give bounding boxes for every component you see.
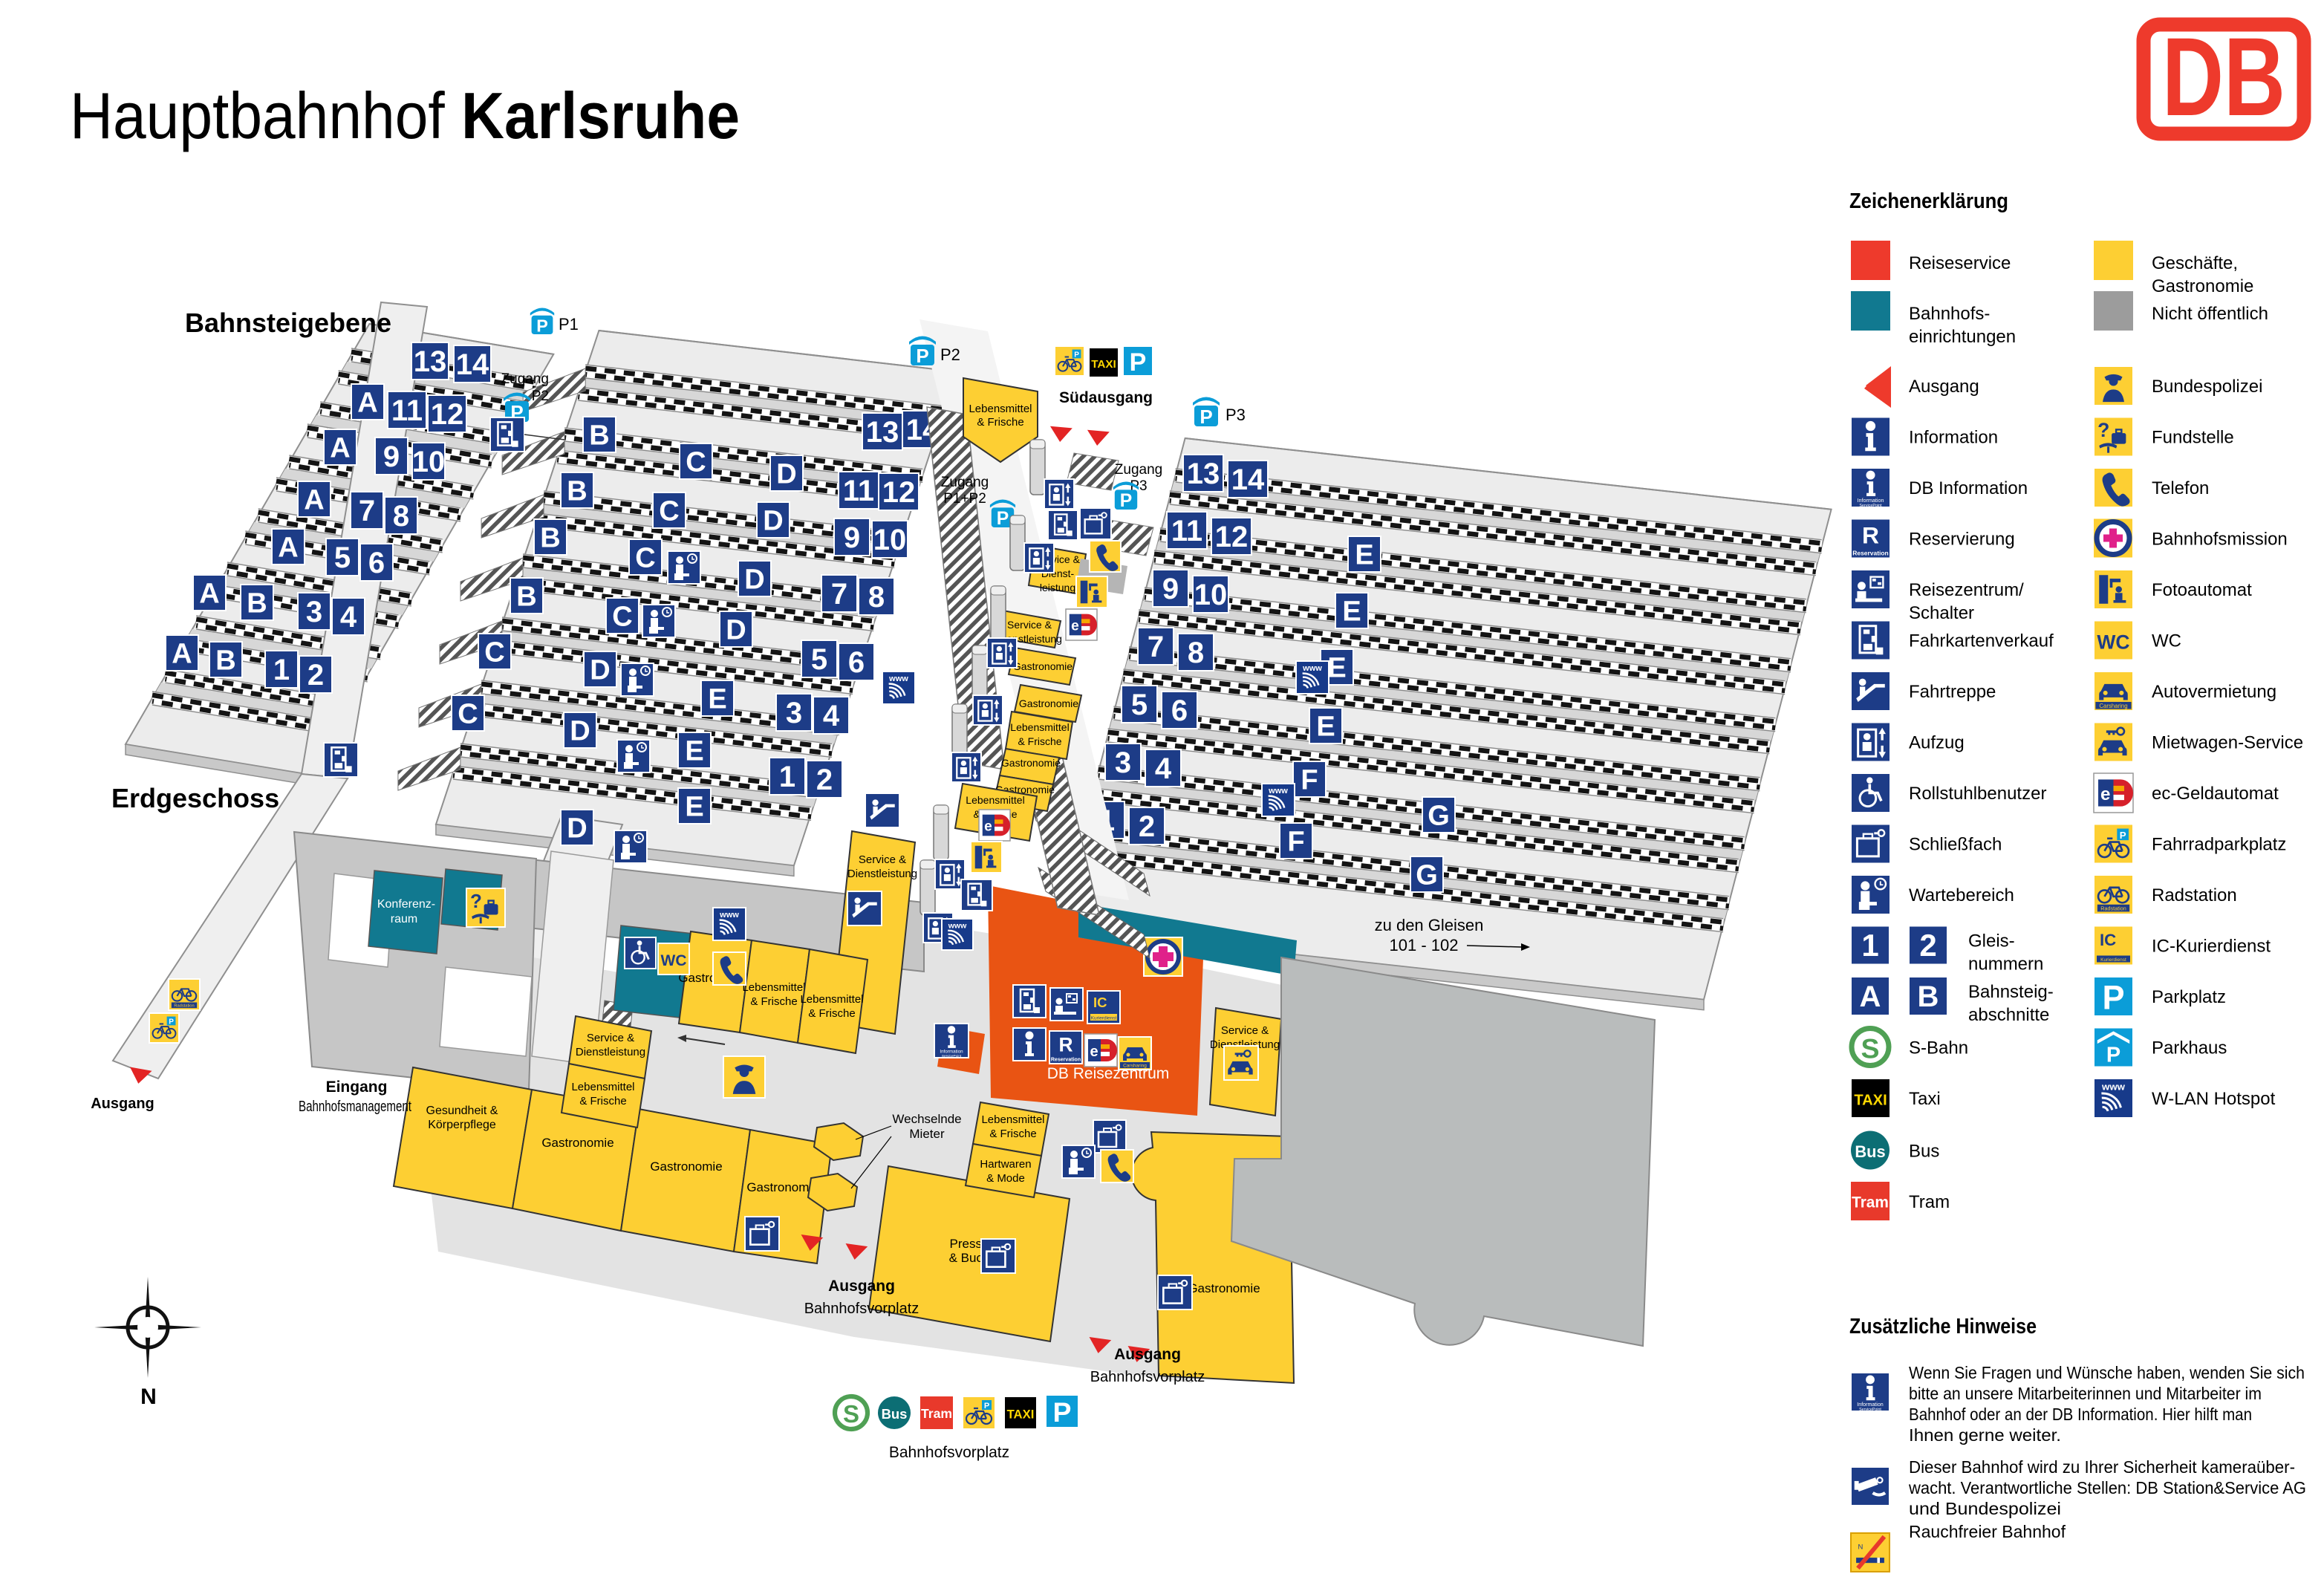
svg-text:Fahrkartenverkauf: Fahrkartenverkauf <box>1909 631 2054 651</box>
svg-text:nummern: nummern <box>1968 954 2043 975</box>
svg-text:Bahnhofs-: Bahnhofs- <box>1909 304 1990 324</box>
svg-text:P: P <box>2106 1043 2120 1067</box>
svg-text:Bahnhofsvorplatz: Bahnhofsvorplatz <box>889 1444 1009 1461</box>
svg-text:Service &: Service & <box>1007 619 1052 631</box>
svg-text:Dienstleistung: Dienstleistung <box>576 1046 645 1058</box>
svg-text:& Frische: & Frische <box>989 1128 1036 1140</box>
svg-text:Reservierung: Reservierung <box>1909 530 2015 550</box>
svg-text:Schalter: Schalter <box>1909 603 1974 623</box>
svg-text:10: 10 <box>873 524 907 556</box>
svg-text:5: 5 <box>811 643 827 676</box>
svg-text:Ihnen gerne weiter.: Ihnen gerne weiter. <box>1909 1425 2061 1445</box>
svg-text:S: S <box>1861 1033 1879 1064</box>
svg-text:Lebensmittel: Lebensmittel <box>1010 721 1069 733</box>
svg-text:Wenn Sie Fragen und Wünsche ha: Wenn Sie Fragen und Wünsche haben, wende… <box>1909 1363 2305 1382</box>
svg-text:E: E <box>708 683 726 715</box>
svg-text:Parkhaus: Parkhaus <box>2152 1038 2227 1058</box>
svg-text:Information: Information <box>1857 1402 1883 1408</box>
svg-text:Bahnsteig-: Bahnsteig- <box>1968 982 2054 1002</box>
svg-text:ServicePoint: ServicePoint <box>1859 504 1882 508</box>
svg-text:Ausgang: Ausgang <box>828 1278 895 1295</box>
svg-text:WC: WC <box>2152 631 2181 651</box>
svg-text:Bahnhofsmission: Bahnhofsmission <box>2152 530 2288 550</box>
svg-text:Radstation: Radstation <box>2152 885 2237 905</box>
svg-text:8: 8 <box>1188 637 1204 669</box>
svg-text:5: 5 <box>334 541 351 574</box>
svg-text:Zusätzliche Hinweise: Zusätzliche Hinweise <box>1849 1315 2037 1338</box>
svg-text:?: ? <box>2097 419 2109 441</box>
svg-text:E: E <box>1342 596 1361 627</box>
svg-text:D: D <box>763 505 783 536</box>
svg-text:B: B <box>589 420 609 451</box>
svg-text:Bahnhofsvorplatz: Bahnhofsvorplatz <box>804 1301 919 1317</box>
svg-text:Ausgang: Ausgang <box>1909 377 1979 397</box>
svg-text:DB: DB <box>2162 14 2285 139</box>
svg-text:P: P <box>2120 830 2126 841</box>
svg-text:Fahrtreppe: Fahrtreppe <box>1909 682 1996 702</box>
svg-text:A: A <box>357 387 377 418</box>
svg-text:Kurierdienst: Kurierdienst <box>1091 1016 1117 1021</box>
svg-text:ServicePoint: ServicePoint <box>942 1054 962 1058</box>
svg-text:Geschäfte,: Geschäfte, <box>2152 253 2238 273</box>
svg-text:& Mode: & Mode <box>986 1172 1025 1185</box>
svg-text:Gesundheit &: Gesundheit & <box>426 1105 498 1117</box>
svg-text:TAXI: TAXI <box>1854 1093 1887 1109</box>
svg-text:Mietwagen-Service: Mietwagen-Service <box>2152 733 2303 753</box>
svg-text:14: 14 <box>456 348 489 381</box>
svg-text:11: 11 <box>843 475 874 507</box>
svg-text:P: P <box>2102 978 2124 1016</box>
svg-text:E: E <box>685 791 703 822</box>
svg-text:F: F <box>1287 826 1304 857</box>
svg-text:G: G <box>1428 800 1450 831</box>
svg-text:C: C <box>659 495 679 527</box>
svg-text:A: A <box>172 638 192 669</box>
svg-text:D: D <box>776 458 796 489</box>
svg-text:D: D <box>726 614 746 645</box>
svg-text:P: P <box>997 509 1009 529</box>
svg-text:Carsharing: Carsharing <box>2099 703 2127 709</box>
svg-text:Lebensmittel: Lebensmittel <box>981 1113 1044 1126</box>
svg-text:Mieter: Mieter <box>909 1127 945 1141</box>
svg-text:A: A <box>278 532 298 563</box>
svg-text:Reisezentrum/: Reisezentrum/ <box>1909 580 2024 600</box>
svg-text:Hartwaren: Hartwaren <box>980 1158 1031 1171</box>
svg-text:7: 7 <box>1148 631 1164 663</box>
svg-text:1: 1 <box>1861 928 1878 963</box>
svg-text:P: P <box>1120 491 1132 511</box>
svg-text:B: B <box>567 475 587 507</box>
svg-text:P: P <box>1074 351 1079 360</box>
svg-text:bitte an unsere Mitarbeiterinn: bitte an unsere Mitarbeiterinnen und Mit… <box>1909 1384 2262 1403</box>
svg-text:11: 11 <box>391 394 423 427</box>
svg-text:Rollstuhlbenutzer: Rollstuhlbenutzer <box>1909 784 2046 804</box>
svg-text:Ausgang: Ausgang <box>1114 1346 1181 1363</box>
svg-text:13: 13 <box>866 416 899 449</box>
svg-text:Gastronomie: Gastronomie <box>1019 697 1078 709</box>
svg-text:3: 3 <box>786 697 802 729</box>
svg-text:P: P <box>536 316 548 335</box>
svg-text:C: C <box>686 446 706 478</box>
svg-text:Service &: Service & <box>859 853 906 866</box>
svg-text:P2: P2 <box>940 345 960 364</box>
svg-text:leistung: leistung <box>1040 582 1075 593</box>
svg-text:A: A <box>330 432 350 463</box>
svg-text:Bahnsteigebene: Bahnsteigebene <box>185 308 391 338</box>
svg-text:raum: raum <box>391 913 417 926</box>
svg-text:e: e <box>2100 784 2110 804</box>
svg-text:Reservation: Reservation <box>1852 549 1888 556</box>
svg-text:2: 2 <box>307 659 324 692</box>
svg-text:Wartebereich: Wartebereich <box>1909 885 2014 905</box>
svg-text:Zugang: Zugang <box>501 371 549 387</box>
svg-text:N: N <box>140 1385 157 1409</box>
svg-text:12: 12 <box>431 398 464 431</box>
svg-text:5: 5 <box>1131 689 1148 721</box>
svg-text:und Bundespolizei: und Bundespolizei <box>1909 1499 2061 1518</box>
svg-text:einrichtungen: einrichtungen <box>1909 327 2016 347</box>
svg-text:P1: P1 <box>559 315 579 334</box>
svg-text:11: 11 <box>1171 515 1202 547</box>
svg-text:P: P <box>984 1402 989 1411</box>
svg-text:Konferenz-: Konferenz- <box>377 898 435 911</box>
svg-text:Parkplatz: Parkplatz <box>2152 987 2226 1007</box>
svg-text:B: B <box>1918 980 1939 1013</box>
svg-text:Bahnhofsvorplatz: Bahnhofsvorplatz <box>1090 1369 1205 1385</box>
svg-text:G: G <box>1416 859 1438 891</box>
svg-text:Lebensmittel: Lebensmittel <box>571 1081 634 1093</box>
svg-text:P: P <box>1130 348 1147 377</box>
svg-text:4: 4 <box>1155 752 1172 785</box>
svg-text:9: 9 <box>1162 573 1179 605</box>
svg-text:Nicht öffentlich: Nicht öffentlich <box>2152 304 2268 324</box>
svg-text:Südausgang: Südausgang <box>1059 389 1153 406</box>
svg-text:Erdgeschoss: Erdgeschoss <box>111 783 279 813</box>
svg-text:Lebensmittel: Lebensmittel <box>966 794 1024 806</box>
svg-text:6: 6 <box>1171 694 1188 727</box>
svg-text:B: B <box>540 522 560 553</box>
svg-text:Lebensmittel: Lebensmittel <box>800 993 863 1006</box>
svg-text:Bahnhof oder an der DB Informa: Bahnhof oder an der DB Information. Hier… <box>1909 1405 2252 1424</box>
svg-text:Bundespolizei: Bundespolizei <box>2152 377 2262 397</box>
svg-text:TAXI: TAXI <box>1007 1407 1035 1421</box>
svg-text:Zeichenerklärung: Zeichenerklärung <box>1849 189 2008 213</box>
svg-text:Körperpflege: Körperpflege <box>428 1119 496 1131</box>
svg-text:Dienstleistung: Dienstleistung <box>847 868 917 880</box>
svg-text:4: 4 <box>823 700 840 732</box>
svg-text:Gastronomie: Gastronomie <box>2152 276 2253 296</box>
svg-text:www: www <box>1302 664 1322 673</box>
svg-text:Gleis-: Gleis- <box>1968 931 2015 951</box>
svg-text:& Frische: & Frische <box>750 995 797 1008</box>
svg-text:S: S <box>843 1400 859 1428</box>
svg-text:www: www <box>2101 1081 2126 1093</box>
svg-text:Dieser Bahnhof wird zu Ihrer S: Dieser Bahnhof wird zu Ihrer Sicherheit … <box>1909 1457 2295 1477</box>
svg-text:7: 7 <box>359 495 375 527</box>
svg-text:& Frische: & Frische <box>808 1007 855 1020</box>
svg-text:A: A <box>304 484 324 515</box>
svg-text:Gastronomie: Gastronomie <box>1013 660 1073 672</box>
svg-text:Service &: Service & <box>1221 1024 1269 1037</box>
svg-text:Autovermietung: Autovermietung <box>2152 682 2276 702</box>
svg-text:S-Bahn: S-Bahn <box>1909 1038 1968 1058</box>
svg-text:P: P <box>1200 406 1212 428</box>
svg-text:www: www <box>1268 787 1288 796</box>
svg-text:E: E <box>1316 711 1335 742</box>
svg-text:2: 2 <box>816 764 833 796</box>
svg-text:E: E <box>685 735 703 767</box>
svg-text:IC: IC <box>1093 995 1107 1010</box>
svg-text:Lebensmittel: Lebensmittel <box>969 403 1032 415</box>
svg-text:9: 9 <box>844 521 860 554</box>
svg-text:7: 7 <box>831 578 847 611</box>
svg-text:www: www <box>719 911 739 920</box>
svg-text:IC: IC <box>2100 931 2116 949</box>
svg-text:R: R <box>1058 1033 1073 1055</box>
svg-text:R: R <box>1862 521 1879 548</box>
svg-text:8: 8 <box>868 581 885 614</box>
svg-text:TAXI: TAXI <box>1091 358 1116 371</box>
svg-text:Gastronomie: Gastronomie <box>1001 757 1061 769</box>
svg-text:Bahnhofsmanagement: Bahnhofsmanagement <box>299 1099 411 1115</box>
svg-text:N: N <box>1858 1543 1863 1551</box>
svg-text:2: 2 <box>1919 928 1936 963</box>
svg-text:C: C <box>612 601 632 632</box>
svg-text:ServicePoint: ServicePoint <box>1859 1408 1881 1412</box>
svg-text:Fotoautomat: Fotoautomat <box>2152 580 2252 600</box>
svg-text:C: C <box>458 698 478 729</box>
svg-text:D: D <box>744 564 764 595</box>
svg-text:Service &: Service & <box>587 1032 634 1044</box>
svg-text:10: 10 <box>1194 579 1228 611</box>
svg-text:wacht. Verantwortliche Stellen: wacht. Verantwortliche Stellen: DB Stati… <box>1908 1478 2306 1497</box>
svg-text:ec-Geldautomat: ec-Geldautomat <box>2152 784 2279 804</box>
svg-text:WC: WC <box>661 952 687 969</box>
svg-text:Schließfach: Schließfach <box>1909 835 2002 855</box>
svg-text:P2: P2 <box>532 388 549 404</box>
svg-text:Bus: Bus <box>1909 1142 1939 1162</box>
svg-text:Zugang: Zugang <box>1115 462 1162 478</box>
svg-text:2: 2 <box>1139 810 1155 843</box>
svg-text:Information: Information <box>1909 428 1998 448</box>
svg-text:Carsharing: Carsharing <box>1123 1064 1147 1069</box>
svg-text:Eingang: Eingang <box>326 1079 388 1096</box>
svg-text:Reiseservice: Reiseservice <box>1909 253 2011 273</box>
svg-text:Aufzug: Aufzug <box>1909 733 1965 753</box>
svg-text:Rauchfreier Bahnhof: Rauchfreier Bahnhof <box>1909 1522 2066 1541</box>
svg-text:8: 8 <box>393 500 409 533</box>
svg-text:9: 9 <box>383 440 400 473</box>
svg-text:Gastronomie: Gastronomie <box>650 1159 722 1174</box>
svg-text:Telefon: Telefon <box>2152 478 2209 498</box>
svg-text:Zugang: Zugang <box>941 475 989 490</box>
svg-text:D: D <box>590 654 610 686</box>
svg-text:DB Information: DB Information <box>1909 478 2028 498</box>
svg-text:P3: P3 <box>1226 406 1246 424</box>
svg-text:P: P <box>169 1018 174 1027</box>
svg-text:E: E <box>1327 652 1346 683</box>
svg-text:abschnitte: abschnitte <box>1968 1005 2049 1025</box>
svg-text:A: A <box>199 578 219 609</box>
svg-text:www: www <box>888 674 908 683</box>
svg-text:E: E <box>1355 539 1373 570</box>
svg-text:?: ? <box>470 890 482 912</box>
svg-text:IC-Kurierdienst: IC-Kurierdienst <box>2152 937 2271 957</box>
svg-text:Bus: Bus <box>882 1406 908 1422</box>
svg-text:13: 13 <box>414 345 447 378</box>
svg-text:12: 12 <box>882 476 916 509</box>
svg-text:1: 1 <box>273 654 290 686</box>
svg-text:e: e <box>1071 619 1079 634</box>
svg-text:C: C <box>635 542 655 573</box>
svg-text:P1+P2: P1+P2 <box>943 491 986 507</box>
svg-text:1: 1 <box>779 761 795 793</box>
svg-text:& Frische: & Frische <box>1018 735 1061 747</box>
svg-text:101 - 102: 101 - 102 <box>1390 936 1459 954</box>
svg-text:& Frische: & Frische <box>977 416 1023 429</box>
svg-text:14: 14 <box>1231 463 1265 496</box>
svg-text:www: www <box>948 921 967 930</box>
svg-text:e: e <box>1090 1044 1098 1060</box>
svg-text:13: 13 <box>1187 458 1220 490</box>
svg-text:3: 3 <box>306 596 322 628</box>
svg-text:Ausgang: Ausgang <box>91 1096 154 1112</box>
svg-text:WC: WC <box>2097 631 2129 654</box>
svg-text:A: A <box>1860 980 1881 1013</box>
svg-text:Taxi: Taxi <box>1909 1089 1941 1109</box>
svg-text:Radstation: Radstation <box>2100 905 2126 912</box>
svg-text:D: D <box>567 813 587 844</box>
svg-text:Wechselnde: Wechselnde <box>892 1112 961 1126</box>
svg-text:6: 6 <box>848 646 865 679</box>
svg-text:P: P <box>1053 1396 1072 1428</box>
svg-text:e: e <box>984 819 992 835</box>
svg-text:Gastronomie: Gastronomie <box>1188 1281 1260 1295</box>
svg-text:Hauptbahnhof Karlsruhe: Hauptbahnhof Karlsruhe <box>70 79 740 152</box>
svg-text:C: C <box>484 637 504 668</box>
svg-text:Radstation: Radstation <box>174 1004 194 1009</box>
svg-text:W-LAN Hotspot: W-LAN Hotspot <box>2152 1089 2276 1109</box>
svg-text:B: B <box>516 581 536 612</box>
svg-text:Kurierdienst: Kurierdienst <box>2100 957 2126 963</box>
svg-text:4: 4 <box>340 601 357 634</box>
svg-text:Tram: Tram <box>1909 1192 1950 1212</box>
svg-text:10: 10 <box>412 446 446 478</box>
svg-text:6: 6 <box>368 547 385 579</box>
svg-text:Fundstelle: Fundstelle <box>2152 428 2234 448</box>
svg-text:Gastronomie: Gastronomie <box>541 1136 613 1150</box>
svg-text:Tram: Tram <box>1852 1194 1889 1211</box>
svg-text:& Frische: & Frische <box>579 1095 626 1107</box>
svg-text:B: B <box>247 588 267 619</box>
svg-text:F: F <box>1301 764 1318 796</box>
svg-text:3: 3 <box>1115 746 1131 779</box>
svg-text:Tram: Tram <box>921 1406 952 1421</box>
svg-text:Reservation: Reservation <box>1051 1057 1081 1062</box>
svg-text:zu den Gleisen: zu den Gleisen <box>1375 916 1484 934</box>
svg-text:P: P <box>916 345 928 367</box>
svg-text:Bus: Bus <box>1855 1142 1885 1161</box>
svg-text:Fahrradparkplatz: Fahrradparkplatz <box>2152 835 2286 855</box>
svg-text:D: D <box>570 715 590 746</box>
svg-text:Information: Information <box>1857 497 1884 504</box>
svg-text:Lebensmittel: Lebensmittel <box>742 981 805 994</box>
svg-text:12: 12 <box>1215 521 1249 553</box>
svg-text:B: B <box>215 645 235 676</box>
